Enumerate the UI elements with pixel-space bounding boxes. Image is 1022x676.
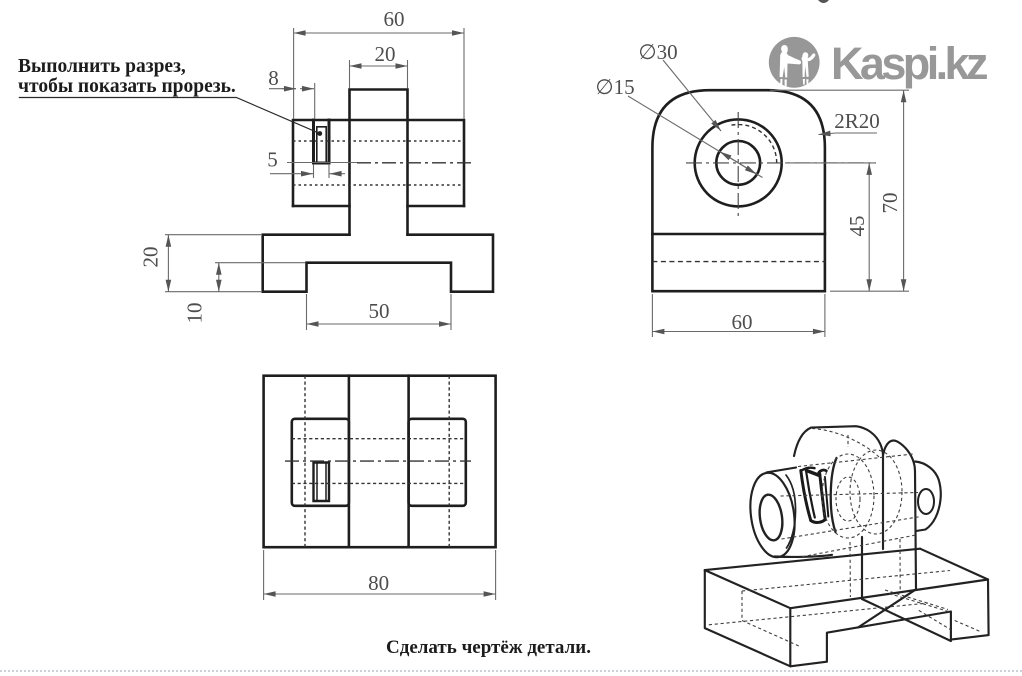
svg-text:Сделать чертёж детали.: Сделать чертёж детали. <box>386 637 591 658</box>
svg-text:∅15: ∅15 <box>595 75 634 99</box>
svg-text:2R20: 2R20 <box>834 109 880 133</box>
svg-text:70: 70 <box>878 193 902 214</box>
svg-text:45: 45 <box>845 216 869 237</box>
svg-text:5: 5 <box>267 148 278 172</box>
svg-text:20: 20 <box>139 247 163 268</box>
svg-text:60: 60 <box>732 310 753 334</box>
svg-text:Выполнить разрез,: Выполнить разрез, <box>18 56 186 77</box>
svg-text:80: 80 <box>368 571 389 595</box>
svg-text:10: 10 <box>183 303 207 324</box>
svg-text:20: 20 <box>375 42 396 66</box>
svg-text:∅30: ∅30 <box>638 40 677 64</box>
svg-text:8: 8 <box>268 66 279 90</box>
svg-text:60: 60 <box>384 7 405 31</box>
svg-text:Kaspi.kz: Kaspi.kz <box>831 38 987 89</box>
svg-text:чтобы показать прорезь.: чтобы показать прорезь. <box>18 76 236 97</box>
svg-text:50: 50 <box>369 299 390 323</box>
